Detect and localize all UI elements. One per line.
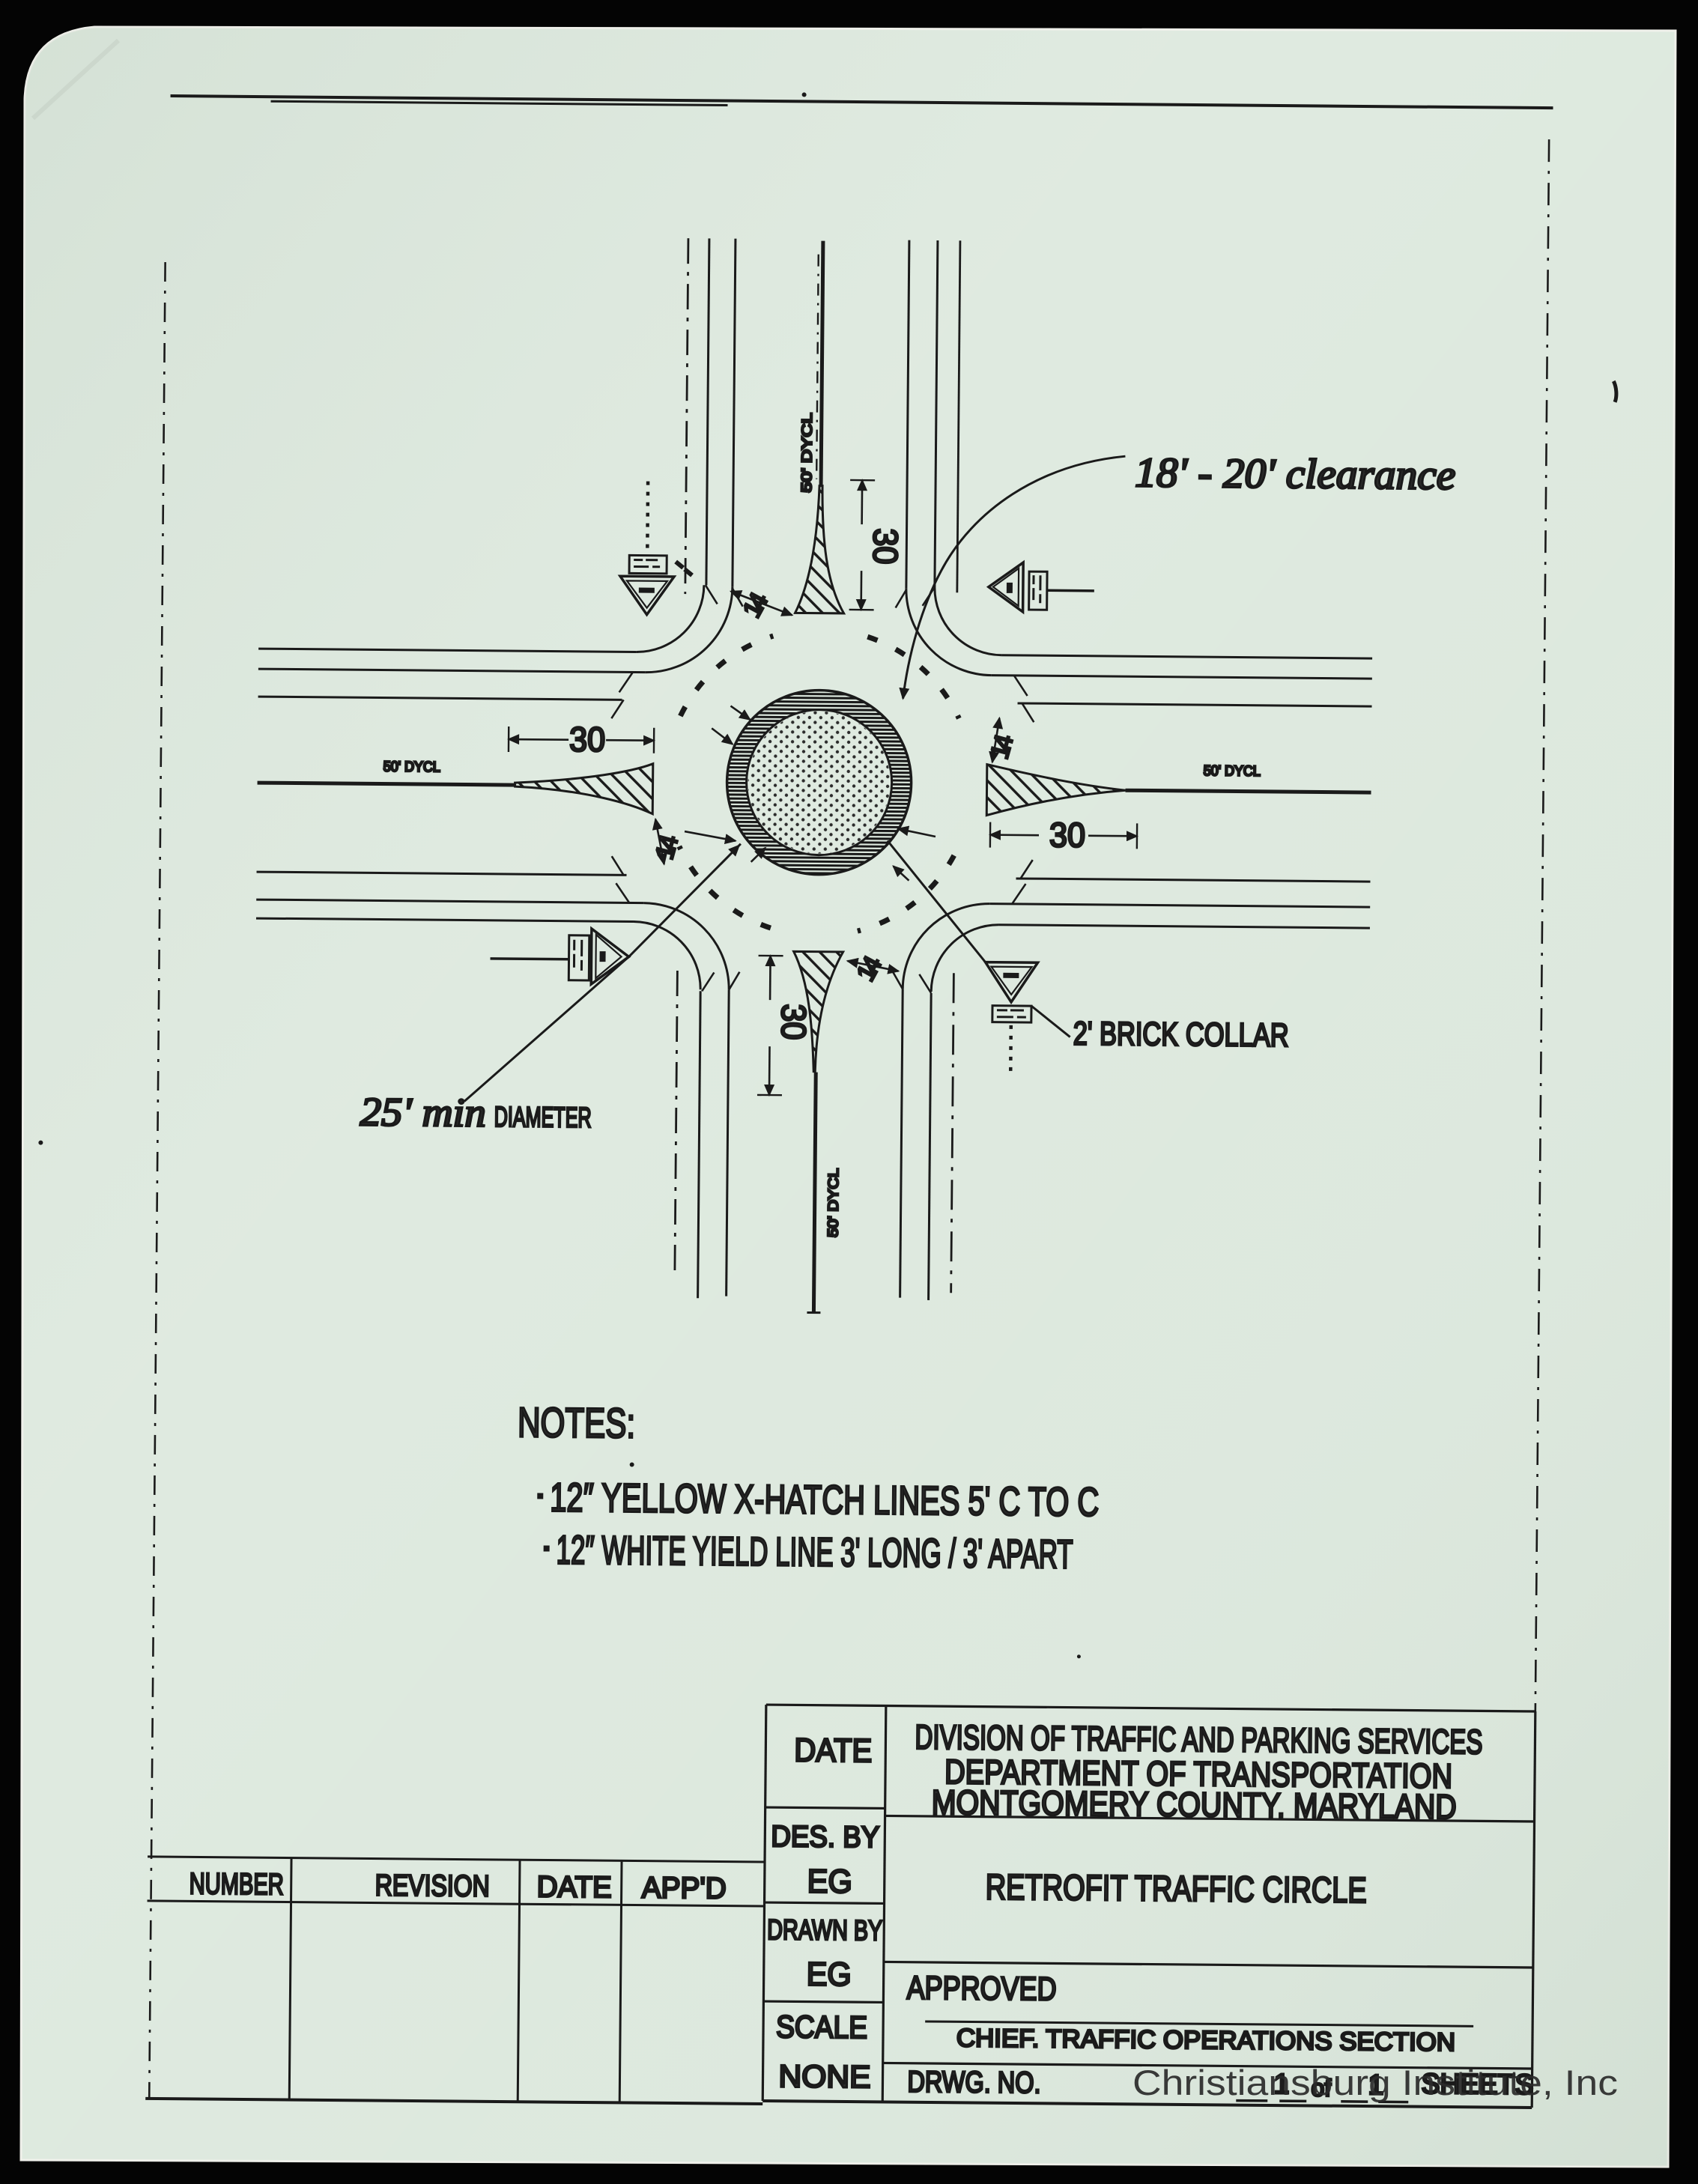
svg-text:EG: EG [807, 1956, 852, 1994]
svg-text:DRWG. NO.: DRWG. NO. [907, 2066, 1040, 2100]
svg-text:30: 30 [1049, 815, 1085, 854]
svg-text:DIAMETER: DIAMETER [494, 1102, 592, 1134]
svg-text:NONE: NONE [778, 2058, 870, 2094]
svg-text:APPROVED: APPROVED [906, 1970, 1056, 2008]
svg-text:DATE: DATE [794, 1732, 872, 1769]
svg-text:30: 30 [774, 1004, 813, 1040]
svg-text:APP'D: APP'D [642, 1872, 727, 1905]
svg-text:18' - 20' clearance: 18' - 20' clearance [1135, 449, 1456, 499]
svg-text:CHIEF. TRAFFIC OPERATIONS SECT: CHIEF. TRAFFIC OPERATIONS SECTION [956, 2024, 1455, 2057]
svg-text:12″ WHITE YIELD LINE 3' LONG /: 12″ WHITE YIELD LINE 3' LONG / 3' APART [556, 1528, 1073, 1577]
svg-text:50' DYCL: 50' DYCL [799, 413, 816, 492]
svg-text:NUMBER: NUMBER [189, 1867, 284, 1901]
svg-text:EG: EG [807, 1863, 852, 1901]
svg-text:50' DYCL: 50' DYCL [383, 759, 440, 776]
svg-text:DATE: DATE [537, 1870, 612, 1904]
svg-text:RETROFIT TRAFFIC CIRCLE: RETROFIT TRAFFIC CIRCLE [986, 1868, 1367, 1911]
svg-text:DES. BY: DES. BY [771, 1820, 879, 1854]
svg-text:50' DYCL: 50' DYCL [825, 1168, 842, 1237]
svg-text:12″ YELLOW X-HATCH LINES 5' C: 12″ YELLOW X-HATCH LINES 5' C TO C [550, 1475, 1099, 1525]
svg-text:25' min: 25' min [360, 1089, 486, 1135]
svg-text:REVISION: REVISION [375, 1869, 490, 1903]
svg-text:30: 30 [866, 528, 905, 564]
svg-text:NOTES:: NOTES: [518, 1398, 636, 1446]
svg-text:Christiansburg Institute, Inc: Christiansburg Institute, Inc [1132, 2063, 1618, 2102]
svg-text:MONTGOMERY COUNTY. MARYLAND: MONTGOMERY COUNTY. MARYLAND [932, 1783, 1457, 1826]
svg-text:30: 30 [569, 720, 605, 759]
svg-text:DRAWN BY: DRAWN BY [767, 1914, 882, 1947]
svg-text:SCALE: SCALE [776, 2009, 867, 2045]
svg-text:2' BRICK COLLAR: 2' BRICK COLLAR [1073, 1016, 1288, 1055]
svg-text:50' DYCL: 50' DYCL [1204, 763, 1261, 780]
